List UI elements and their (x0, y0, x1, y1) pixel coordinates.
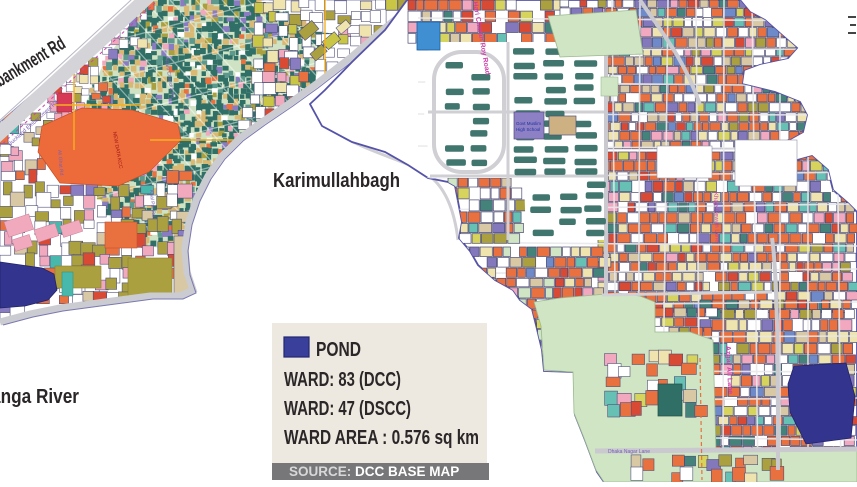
svg-text:WARD: 47 (DSCC): WARD: 47 (DSCC) (284, 398, 411, 420)
svg-text:Karimullahbagh: Karimullahbagh (273, 170, 400, 192)
svg-text:POND: POND (316, 339, 361, 361)
svg-text:Govt Muslim: Govt Muslim (516, 121, 541, 126)
svg-text:WARD: 83 (DCC): WARD: 83 (DCC) (284, 369, 401, 391)
svg-text:Dhaka Nagar Lane: Dhaka Nagar Lane (608, 449, 650, 455)
svg-text:anga River: anga River (0, 386, 79, 408)
svg-text:WARD AREA : 0.576 sq km: WARD AREA : 0.576 sq km (284, 427, 479, 449)
svg-text:High School: High School (516, 127, 540, 132)
svg-text:SOURCE: DCC BASE MAP: SOURCE: DCC BASE MAP (289, 464, 459, 479)
